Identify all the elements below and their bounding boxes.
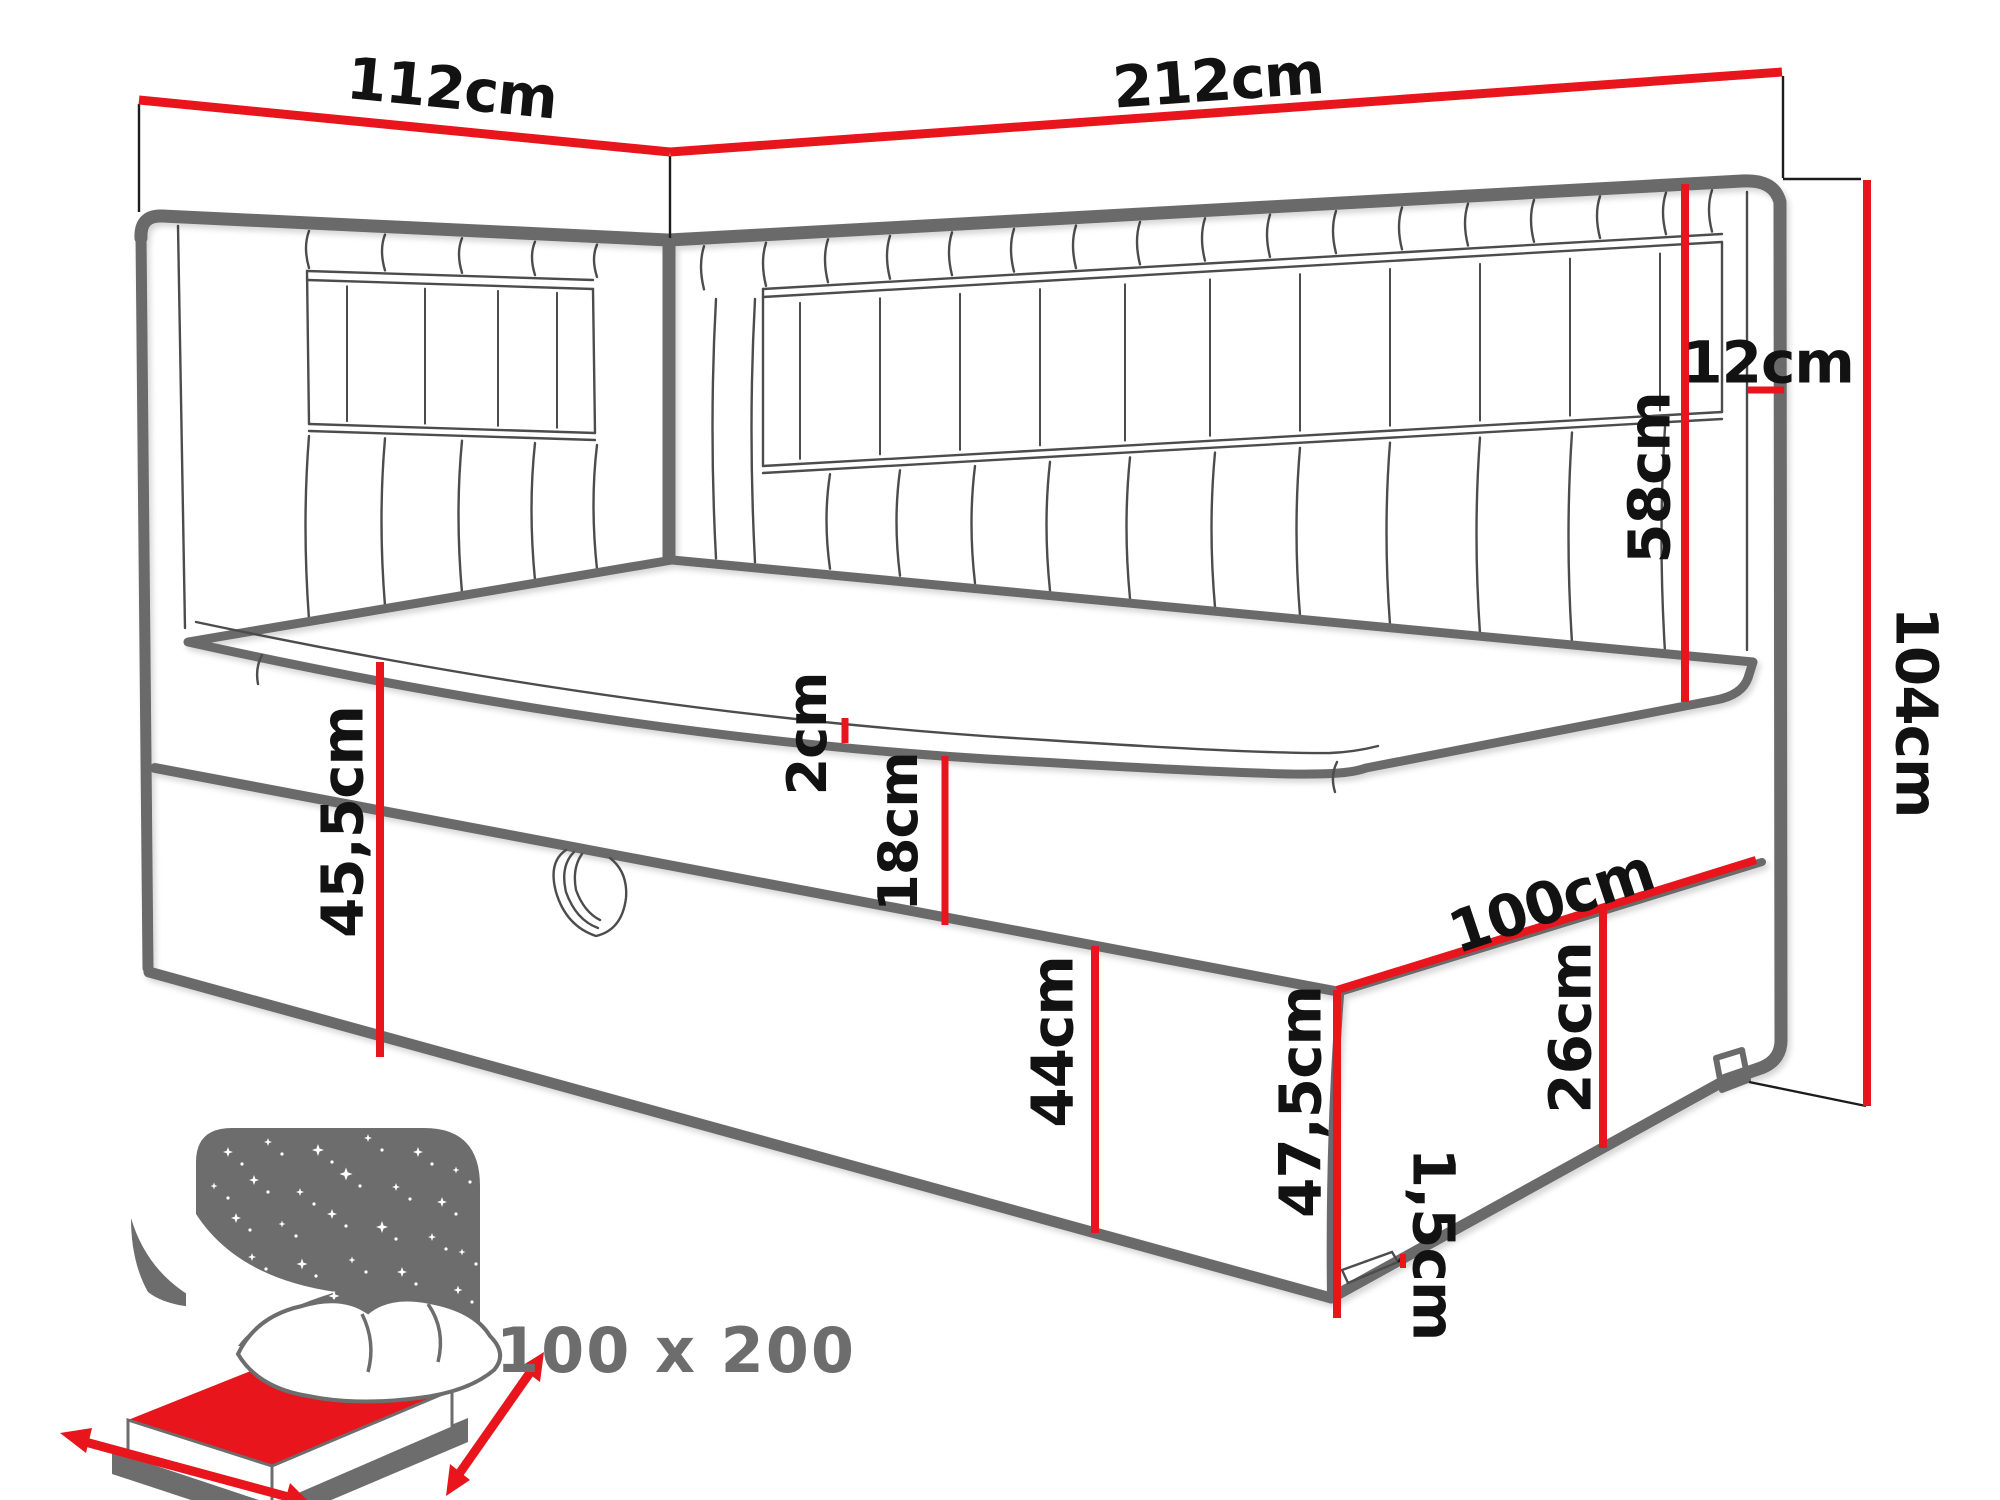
star-dot	[408, 1197, 411, 1200]
tuft-line	[827, 474, 831, 568]
star-dot	[314, 1274, 317, 1277]
tuft-line	[1709, 190, 1712, 231]
star-dot	[380, 1148, 383, 1151]
tuft-line	[532, 242, 535, 275]
tuft-line	[701, 246, 704, 289]
tuft-line	[1399, 207, 1402, 249]
drawer-handle	[554, 850, 627, 936]
tuft-line	[972, 466, 976, 583]
star-dot	[344, 1224, 347, 1227]
tuft-line	[532, 443, 536, 580]
tuft-line	[1465, 204, 1468, 246]
tuft-line	[1267, 215, 1270, 257]
headboard-long-niche	[763, 234, 1722, 473]
tuft-line	[1663, 193, 1666, 235]
tuft-line	[713, 299, 717, 558]
tuft-line	[949, 232, 952, 275]
tuft-line	[1569, 432, 1573, 642]
bed-left-edge	[141, 234, 148, 968]
tuft-line	[1387, 443, 1391, 625]
dim-label-45-5: 45,5cm	[308, 706, 376, 938]
dim-label-47-5: 47,5cm	[1266, 986, 1334, 1218]
tuft-line	[752, 299, 756, 562]
star-dot	[226, 1196, 229, 1199]
star-dot	[474, 1262, 477, 1265]
tuft-line	[306, 436, 310, 619]
star-dot	[364, 1270, 367, 1273]
headboard-left-niche	[307, 271, 595, 440]
dim-label-2: 2cm	[776, 673, 839, 796]
mattress-size-label: 100 x 200	[496, 1314, 856, 1387]
diagram-canvas: 112cm 212cm 12cm 58cm 104cm 2cm 18cm 45,…	[0, 0, 2000, 1500]
star-dot	[248, 1228, 251, 1231]
headboard-long-top-edge	[669, 181, 1781, 1080]
mattress-size-icon: 100 x 200	[60, 1128, 856, 1500]
star-dot	[312, 1202, 315, 1205]
bed-dimension-diagram: 112cm 212cm 12cm 58cm 104cm 2cm 18cm 45,…	[0, 0, 2000, 1500]
star-dot	[444, 1247, 447, 1250]
headboard-left-frame-line	[178, 226, 185, 628]
dim-label-26: 26cm	[1536, 942, 1604, 1114]
tuft-line	[1137, 222, 1140, 264]
star-dot	[240, 1162, 243, 1165]
tuft-line	[825, 239, 828, 282]
tuft-line	[1597, 196, 1600, 238]
tuft-line	[1202, 218, 1205, 260]
tuft-line	[1477, 438, 1481, 634]
tuft-line	[1011, 229, 1014, 272]
star-dot	[468, 1180, 471, 1183]
dim-label-12: 12cm	[1682, 328, 1854, 396]
dim-label-1-5: 1,5cm	[1400, 1148, 1468, 1341]
tuft-line	[382, 438, 386, 606]
tuft-line	[1531, 200, 1534, 242]
tuft-line	[763, 243, 766, 286]
tuft-line	[459, 238, 462, 273]
dim-label-18: 18cm	[867, 752, 930, 911]
tuft-line	[887, 236, 890, 279]
tuft-line	[1127, 457, 1131, 598]
star-dot	[430, 1162, 433, 1165]
star-dot	[454, 1212, 457, 1215]
tuft-line	[1333, 211, 1336, 253]
tuft-line	[1297, 448, 1301, 616]
tuft-line	[897, 470, 901, 575]
headboard-left-top-edge	[141, 216, 668, 240]
tuft-line	[382, 235, 385, 271]
tuft-line	[1073, 225, 1076, 268]
star-dot	[266, 1190, 269, 1193]
tuft-line	[459, 441, 463, 593]
icon-duvet	[238, 1300, 500, 1402]
dim-label-58: 58cm	[1615, 392, 1683, 564]
tuft-line	[306, 231, 309, 268]
tuft-line	[1212, 453, 1216, 607]
star-dot	[330, 1160, 333, 1163]
star-dot	[264, 1267, 267, 1270]
tuft-line	[594, 445, 598, 569]
star-dot	[294, 1234, 297, 1237]
tuft-line	[1047, 462, 1051, 591]
tuft-line	[594, 245, 597, 277]
star-dot	[280, 1152, 283, 1155]
star-dot	[358, 1184, 361, 1187]
star-dot	[470, 1300, 473, 1303]
star-dot	[394, 1237, 397, 1240]
foot-right	[1716, 1050, 1748, 1090]
dim-label-44: 44cm	[1018, 956, 1086, 1128]
star-dot	[414, 1282, 417, 1285]
dim-label-104: 104cm	[1883, 607, 1951, 818]
